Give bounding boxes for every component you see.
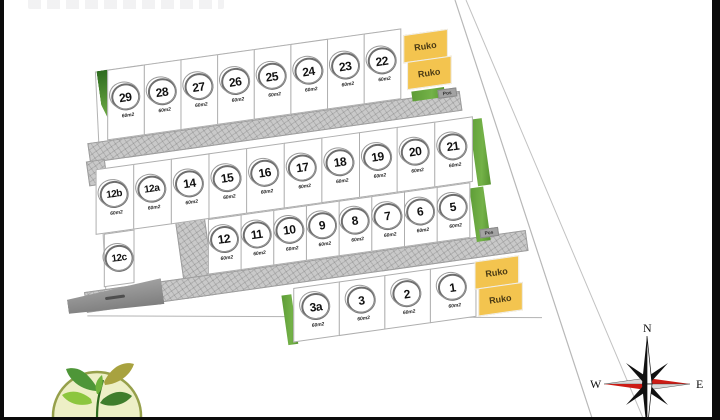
lot-number: 3a [309,299,323,315]
lot-27: 2760m2 [180,54,218,130]
lot-number-circle: 18 [324,147,356,178]
lot-19: 1960m2 [359,127,398,198]
lot-area-label: 60m2 [449,221,462,228]
lot-7: 760m2 [371,191,405,251]
lot-area-label: 60m2 [121,111,134,118]
compass-east-label: E [696,377,703,391]
lot-number-circle: 7 [371,201,403,232]
lot-area-label: 60m2 [148,203,161,210]
lot-8: 860m2 [339,196,373,256]
lot-number-circle: 12c [103,243,135,274]
lot-number: 1 [448,280,456,295]
lot-number: 20 [408,144,422,160]
lot-area-label: 60m2 [194,101,207,108]
lot-11: 1160m2 [241,210,275,270]
lot-area-label: 60m2 [383,231,396,238]
lot-number-circle: 11 [240,219,272,250]
lot-area-label: 60m2 [357,315,370,322]
lot-number-circle: 23 [329,51,361,82]
lot-number-circle: 21 [437,131,469,162]
lot-number: 14 [182,176,196,192]
lot-number-circle: 12a [136,173,168,204]
lot-number-circle: 27 [182,71,214,102]
lot-area-label: 60m2 [373,171,386,178]
lot-number: 22 [375,53,389,69]
lot-number-circle: 1 [436,272,468,303]
lot-area-label: 60m2 [341,81,354,88]
lot-area-label: 60m2 [378,75,391,82]
lot-5: 560m2 [437,182,471,242]
lot-14: 1460m2 [171,153,210,224]
lot-area-label: 60m2 [411,166,424,173]
lot-10: 1060m2 [273,205,307,265]
lot-number-circle: 20 [399,136,431,167]
letterbox-left-bar [0,0,4,420]
lot-area-label: 60m2 [285,244,298,251]
lot-number: 2 [403,286,411,301]
lot-area-label: 60m2 [312,321,325,328]
lot-number: 18 [333,154,347,170]
lot-3: 360m2 [339,275,386,336]
lot-12c: 12c [104,229,135,287]
lot-number-circle: 16 [248,157,280,188]
lot-23: 2360m2 [327,34,365,110]
lot-number: 12b [106,187,123,200]
lot-number: 12c [111,252,128,265]
entry-road-label [105,294,125,300]
lot-number-circle: 12 [208,224,240,255]
lot-number-circle: 19 [361,142,393,173]
lot-area-label: 60m2 [253,249,266,256]
lot-area-label: 60m2 [298,182,311,189]
lot-number-circle: 15 [211,163,243,194]
lot-number-circle: 6 [404,196,436,227]
faint-watermark [28,0,224,9]
lot-number-circle: 22 [365,46,397,77]
lot-number-circle: 26 [219,66,251,97]
lot-number: 25 [265,69,279,85]
lot-12b: 12b60m2 [96,164,135,235]
lot-area-label: 60m2 [268,91,281,98]
lot-number: 27 [191,79,205,95]
lot-number: 29 [118,89,132,105]
lot-25: 2560m2 [254,44,292,120]
lot-number: 23 [338,58,352,74]
lot-number: 26 [228,74,242,90]
lot-number: 8 [351,213,359,228]
lot-15: 1560m2 [208,148,247,219]
lot-number-circle: 3a [300,291,332,322]
pos-label: Pos [443,90,452,97]
lot-24: 2460m2 [290,39,328,115]
lot-number: 24 [301,63,315,79]
ruko-column-bottom: Ruko Ruko [473,256,525,316]
lot-area-label: 60m2 [351,235,364,242]
lot-area-label: 60m2 [110,208,123,215]
lot-area-label: 60m2 [231,96,244,103]
lot-number-circle: 14 [173,168,205,199]
compass-north-label: N [643,322,652,335]
lot-number: 12a [143,182,160,195]
lot-number: 16 [258,165,272,181]
lot-area-label: 60m2 [449,161,462,168]
lot-9: 960m2 [306,201,340,261]
lot-number-circle: 9 [306,210,338,241]
lot-number-circle: 10 [273,215,305,246]
letterbox-right-bar [712,0,720,420]
lot-12a: 12a60m2 [133,159,172,230]
lot-row-12c: 12c [101,224,184,287]
lot-number: 6 [416,204,424,219]
lot-number-circle: 28 [146,76,178,107]
lot-area-label: 60m2 [185,198,198,205]
lot-area-label: 60m2 [448,302,461,309]
lot-3a: 3a60m2 [293,281,340,342]
lot-1: 160m2 [430,262,477,323]
lot-number: 9 [318,218,326,233]
lot-area-label: 60m2 [158,106,171,113]
lot-number-circle: 3 [345,285,377,316]
lot-18: 1860m2 [321,132,360,203]
lot-28: 2860m2 [144,59,182,135]
lot-number: 5 [449,200,457,215]
lot-20: 2060m2 [397,122,436,193]
lot-number: 21 [446,139,460,155]
ruko-label: Ruko [414,40,438,53]
lot-number-circle: 2 [391,278,423,309]
lot-number-circle: 24 [292,56,324,87]
lot-area-label: 60m2 [220,254,233,261]
lot-12: 1260m2 [208,214,242,274]
lot-26: 2660m2 [217,49,255,125]
lot-21: 2160m2 [434,116,473,187]
lot-area-label: 60m2 [223,193,236,200]
lot-2: 260m2 [384,269,431,330]
pos-label: Pos [484,229,493,236]
ruko-block-bottom-2: Ruko [478,282,523,317]
lot-area-label: 60m2 [416,226,429,233]
ruko-block-top-2: Ruko [407,56,452,91]
compass-rose-icon: N W E [588,322,706,420]
lot-number-circle: 8 [338,205,370,236]
ruko-label: Ruko [485,266,509,279]
lot-area-label: 60m2 [304,86,317,93]
lot-number: 7 [383,209,391,224]
lot-number-circle: 12b [98,179,130,210]
lot-number-circle: 25 [256,61,288,92]
lot-number: 15 [220,170,234,186]
leaf-logo-icon [46,352,148,418]
lot-area-label: 60m2 [403,308,416,315]
lot-number: 10 [282,222,296,238]
ruko-label: Ruko [489,293,513,306]
lot-number: 19 [370,149,384,165]
lot-29: 2960m2 [107,64,145,140]
lot-number: 17 [295,160,309,176]
lot-number: 11 [250,227,264,242]
ruko-label: Ruko [418,66,442,79]
lot-number: 12 [217,231,231,247]
lot-number-circle: 29 [109,82,141,113]
lot-number-circle: 17 [286,152,318,183]
compass-west-label: W [590,377,602,391]
lot-17: 1760m2 [284,137,323,208]
lot-number: 3 [357,293,365,308]
lot-area-label: 60m2 [261,187,274,194]
lot-number-circle: 5 [437,192,469,223]
ruko-column-top: Ruko Ruko [402,30,454,90]
lot-area-label: 60m2 [336,177,349,184]
lot-6: 660m2 [404,187,438,247]
lot-area-label: 60m2 [318,240,331,247]
lot-16: 1660m2 [246,143,285,214]
lot-22: 2260m2 [364,28,402,104]
lot-number: 28 [155,84,169,100]
